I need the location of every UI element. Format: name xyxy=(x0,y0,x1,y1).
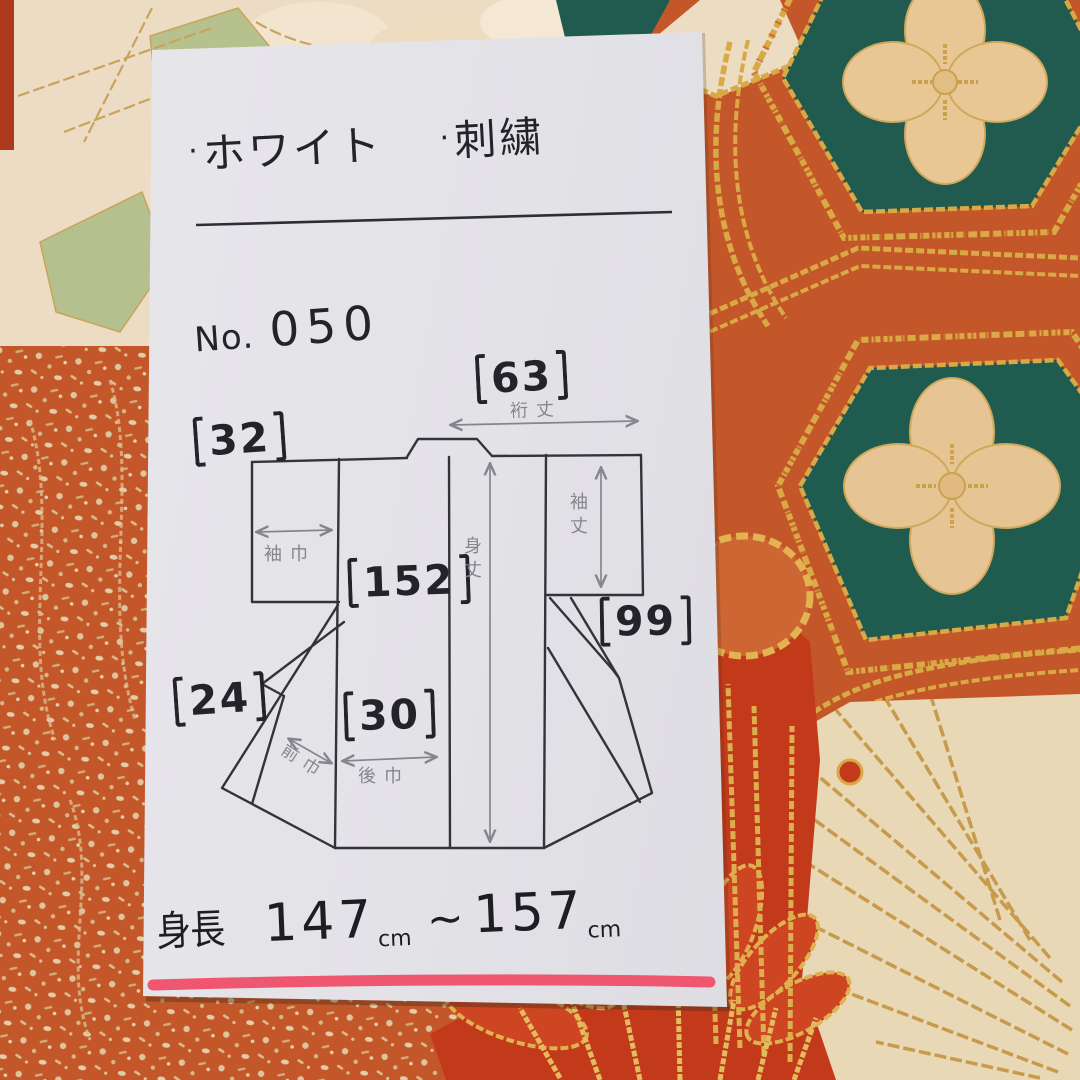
label-mitake: 身丈 xyxy=(458,536,484,584)
bracket-open xyxy=(475,354,488,404)
label-yuki: 裄丈 xyxy=(510,395,563,423)
height-from-unit: cm xyxy=(378,926,413,952)
bracket-open xyxy=(172,677,185,728)
sodehaba-value: 32 xyxy=(207,412,271,466)
height-underline xyxy=(153,980,710,985)
ushirohaba-value: 30 xyxy=(358,689,421,741)
maehaba-value: 24 xyxy=(187,672,251,726)
measurement-ushirohaba: 30 xyxy=(343,688,436,741)
sodetake-value: 99 xyxy=(615,595,677,646)
kimono-collar xyxy=(407,439,492,457)
bracket-close xyxy=(681,595,692,645)
label-ushirohaba: 後巾 xyxy=(358,762,410,788)
height-to: 157 xyxy=(472,881,586,946)
mitake-value: 152 xyxy=(362,554,455,607)
photo-scene: · ホワイト · 刺繍 No. 050 63 32 152 99 24 30 裄 xyxy=(0,0,1080,1080)
bracket-open xyxy=(347,558,359,608)
technique-label: 刺繍 xyxy=(453,103,546,169)
measurement-sodetake: 99 xyxy=(600,595,692,647)
kimono-right-sleeve xyxy=(546,455,643,595)
bracket-close xyxy=(424,688,436,738)
height-label: 身長 xyxy=(155,895,225,958)
color-label: ホワイト xyxy=(201,111,384,181)
measure-arrow-ushirohaba xyxy=(343,757,436,761)
measurement-sodehaba: 32 xyxy=(192,411,286,467)
label-sodetake: 袖丈 xyxy=(564,492,590,540)
kimono-body-seams xyxy=(335,455,546,848)
divider-line xyxy=(196,212,672,225)
kimono-shoulders xyxy=(252,455,641,462)
kimono-left-flare xyxy=(222,605,344,848)
height-from: 147 xyxy=(263,890,377,955)
bracket-open xyxy=(343,691,355,741)
height-to-unit: cm xyxy=(587,917,622,943)
measure-arrow-sodehaba xyxy=(257,530,331,532)
measurement-maehaba: 24 xyxy=(172,671,266,727)
tilde-separator: ~ xyxy=(426,893,465,945)
measurement-mitake: 152 xyxy=(347,554,470,608)
bracket-open xyxy=(192,417,205,468)
number-prefix: No. xyxy=(193,316,255,360)
bracket-open xyxy=(600,597,611,647)
bullet-dot: · xyxy=(187,134,198,169)
label-sodehaba: 袖巾 xyxy=(264,540,316,566)
bullet-dot: · xyxy=(439,121,450,156)
item-number: 050 xyxy=(268,296,382,359)
